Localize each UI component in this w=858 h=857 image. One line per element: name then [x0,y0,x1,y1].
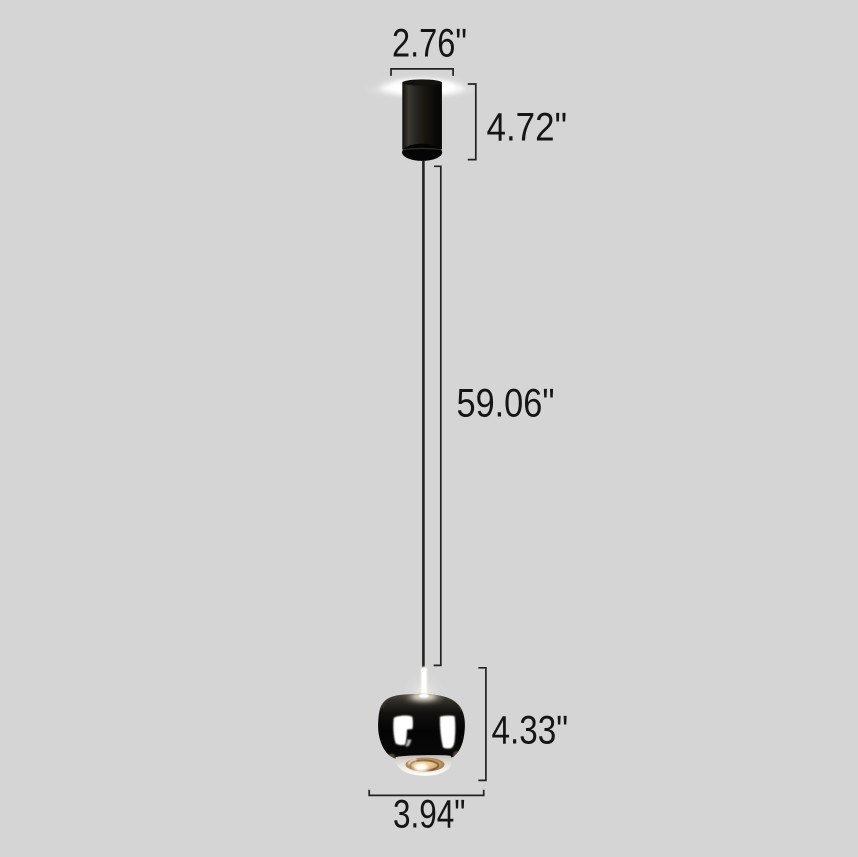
svg-text:4.72": 4.72" [487,106,568,150]
svg-text:4.33": 4.33" [492,709,569,753]
svg-text:59.06": 59.06" [457,382,555,426]
svg-text:2.76": 2.76" [392,22,467,66]
svg-text:3.94": 3.94" [393,793,466,837]
